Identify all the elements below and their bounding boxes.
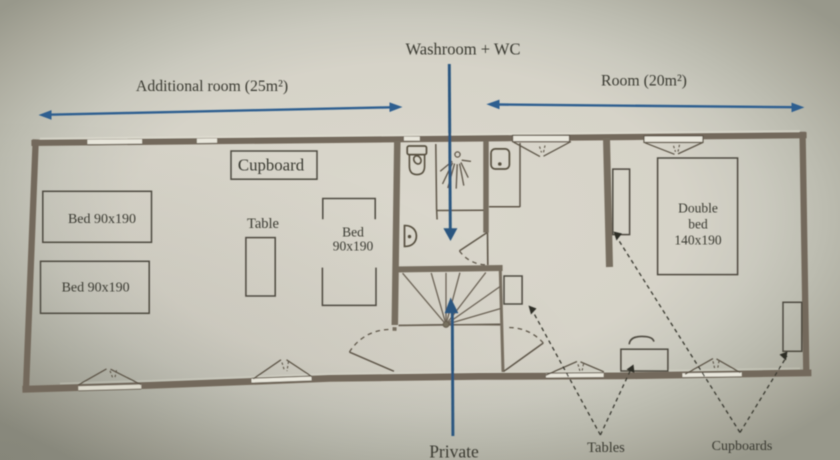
svg-text:Washroom + WC: Washroom + WC (406, 40, 521, 59)
svg-text:Bed: Bed (342, 225, 364, 240)
svg-text:bed: bed (688, 217, 708, 232)
svg-text:140x190: 140x190 (674, 233, 722, 248)
svg-text:Bed 90x190: Bed 90x190 (62, 281, 130, 296)
svg-text:Tables: Tables (587, 440, 625, 456)
svg-text:Table: Table (247, 216, 279, 232)
svg-text:Additional room (25m²): Additional room (25m²) (136, 78, 288, 95)
svg-text:Private: Private (429, 442, 479, 460)
svg-text:Room (20m²): Room (20m²) (601, 73, 687, 90)
svg-text:90x190: 90x190 (333, 239, 374, 254)
svg-text:Double: Double (678, 201, 718, 216)
svg-text:Cupboard: Cupboard (238, 156, 305, 175)
svg-text:Cupboards: Cupboards (712, 439, 773, 454)
svg-text:Bed 90x190: Bed 90x190 (68, 212, 136, 227)
